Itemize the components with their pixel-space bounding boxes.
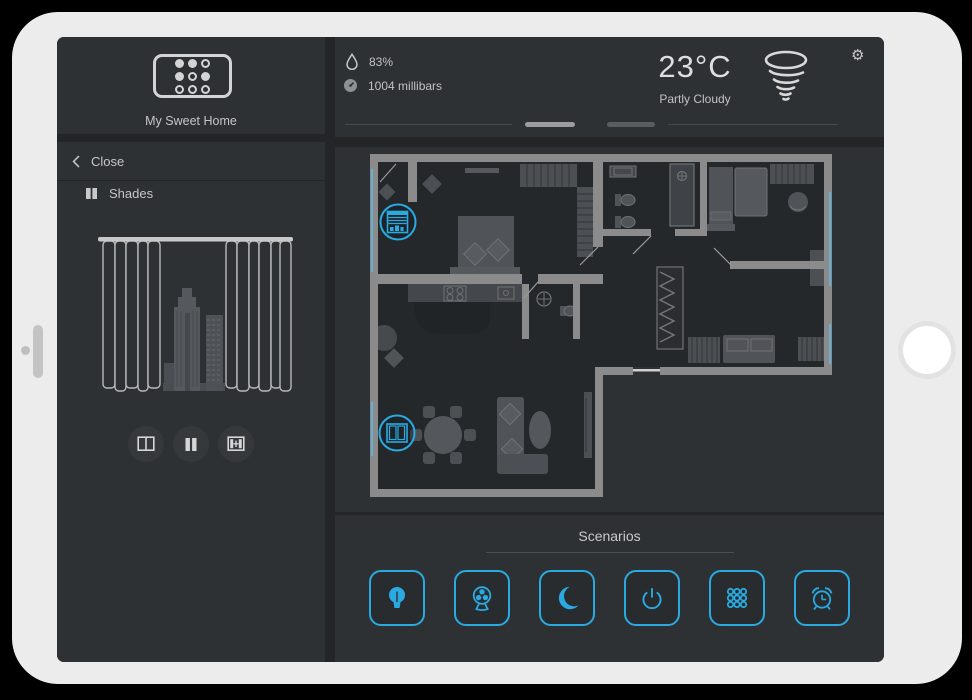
scenario-night-button[interactable] [539, 570, 595, 626]
page-indicator-active[interactable] [525, 122, 575, 127]
shade-controls [57, 426, 325, 462]
scenarios-title: Scenarios [335, 515, 884, 544]
scenarios-underline [486, 552, 734, 553]
microphone-dot [21, 346, 30, 355]
humidity-value: 83% [369, 55, 393, 69]
gear-icon[interactable]: ⚙ [851, 46, 864, 64]
tornado-icon [763, 50, 809, 106]
city-skyline [163, 288, 225, 391]
keypad-icon [723, 584, 751, 612]
weather-condition: Partly Cloudy [633, 92, 757, 106]
curtains-close-icon [227, 436, 245, 452]
floorplan-section [335, 147, 884, 512]
pressure-stat: 1004 millibars [343, 78, 442, 93]
pager-line-right [668, 124, 838, 125]
scenario-remote-button[interactable] [709, 570, 765, 626]
scenario-alarm-button[interactable] [794, 570, 850, 626]
humidity-stat: 83% [345, 53, 393, 70]
roller-shade-button[interactable] [379, 203, 417, 241]
device-label: Shades [109, 186, 153, 201]
pause-button[interactable] [173, 426, 209, 462]
volume-button[interactable] [33, 325, 43, 378]
tablet-frame: My Sweet Home Close Shades [12, 12, 962, 684]
shades-icon [85, 187, 98, 200]
temperature: 23°C [633, 49, 757, 85]
floor-plan [370, 154, 832, 504]
main-area: 83% 1004 millibars 23°C Partly Cloudy [335, 37, 884, 662]
close-curtains-button[interactable] [218, 426, 254, 462]
curtains-button[interactable] [378, 414, 416, 452]
power-icon [638, 584, 666, 612]
droplet-icon [345, 53, 359, 70]
device-title: Shades [85, 186, 153, 201]
curtains-open-icon [137, 436, 155, 452]
page-indicator-inactive[interactable] [607, 122, 655, 127]
home-button[interactable] [903, 326, 951, 374]
scenarios-section: Scenarios [335, 515, 884, 662]
pager-line-left [345, 124, 512, 125]
alarm-clock-icon [808, 584, 836, 612]
pressure-value: 1004 millibars [368, 79, 442, 93]
close-button[interactable]: Close [57, 142, 325, 181]
app-screen: My Sweet Home Close Shades [57, 37, 884, 662]
scenario-power-button[interactable] [624, 570, 680, 626]
moon-icon [553, 584, 581, 612]
close-label: Close [91, 154, 124, 169]
scenario-fan-button[interactable] [454, 570, 510, 626]
open-curtains-button[interactable] [128, 426, 164, 462]
roller-shade-icon [379, 203, 417, 241]
scenario-lights-button[interactable] [369, 570, 425, 626]
weather-header: 83% 1004 millibars 23°C Partly Cloudy [335, 37, 884, 137]
app-name: My Sweet Home [57, 114, 325, 128]
pause-icon [184, 437, 198, 452]
curtain-rod [98, 237, 293, 242]
fan-icon [468, 584, 496, 612]
sidebar: Close Shades [57, 142, 325, 662]
chevron-left-icon [72, 155, 80, 168]
entry-door [633, 369, 660, 372]
app-logo-icon [153, 54, 232, 98]
barometer-icon [343, 78, 358, 93]
curtain-illustration [98, 237, 293, 400]
curtains-icon [378, 414, 416, 452]
lightbulb-icon [383, 584, 411, 612]
sidebar-logo-block: My Sweet Home [57, 37, 325, 134]
